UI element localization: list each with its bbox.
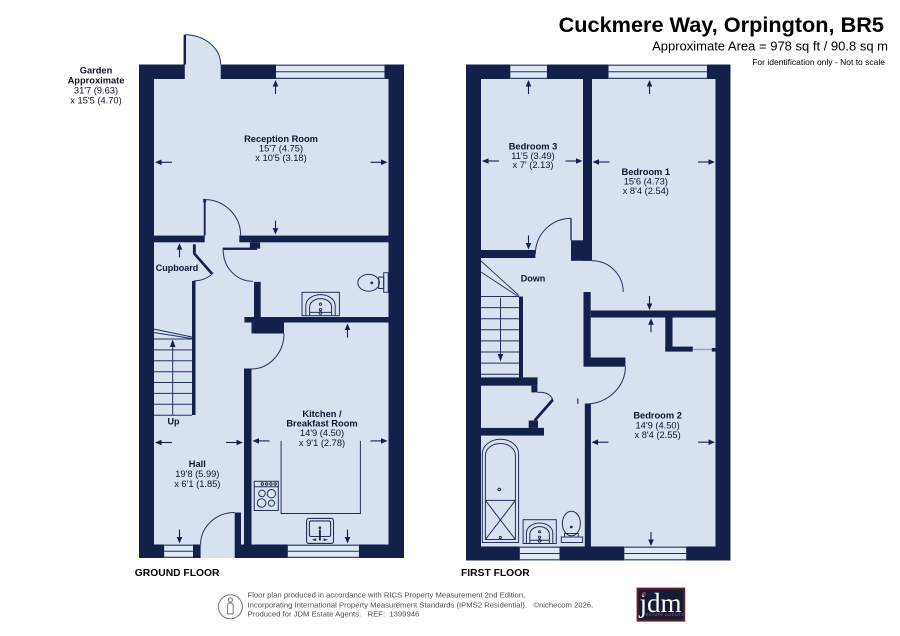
- svg-text:Bedroom 2: Bedroom 2: [633, 411, 682, 421]
- svg-text:Hall: Hall: [189, 459, 206, 469]
- svg-text:x 7' (2.13): x 7' (2.13): [512, 160, 553, 170]
- svg-text:Cuckmere Way, Orpington, BR5: Cuckmere Way, Orpington, BR5: [559, 12, 884, 37]
- svg-text:Cupboard: Cupboard: [156, 263, 199, 273]
- svg-text:x 6'1 (1.85): x 6'1 (1.85): [174, 479, 220, 489]
- svg-text:Reception Room: Reception Room: [244, 134, 318, 144]
- svg-text:x 9'1 (2.78): x 9'1 (2.78): [299, 438, 345, 448]
- svg-text:31'7 (9.63): 31'7 (9.63): [74, 85, 118, 95]
- svg-text:Approximate Area = 978 sq ft /: Approximate Area = 978 sq ft / 90.8 sq m: [652, 39, 888, 54]
- svg-text:x 8'4 (2.54): x 8'4 (2.54): [623, 186, 669, 196]
- svg-text:FIRST FLOOR: FIRST FLOOR: [461, 568, 530, 579]
- svg-text:x 10'5 (3.18): x 10'5 (3.18): [255, 153, 306, 163]
- svg-text:Kitchen /: Kitchen /: [302, 409, 342, 419]
- svg-text:Garden: Garden: [80, 65, 113, 75]
- svg-text:x 8'4 (2.55): x 8'4 (2.55): [634, 430, 680, 440]
- svg-text:Produced for JDM Estate Agents: Produced for JDM Estate Agents. REF: 139…: [248, 610, 420, 619]
- svg-text:Approximate: Approximate: [68, 76, 125, 86]
- svg-text:15'7 (4.75): 15'7 (4.75): [259, 144, 303, 154]
- svg-text:Breakfast Room: Breakfast Room: [286, 419, 357, 429]
- svg-text:ESTATE AGENTS: ESTATE AGENTS: [646, 612, 685, 617]
- svg-text:x 15'5 (4.70): x 15'5 (4.70): [70, 95, 121, 105]
- svg-text:For identification only - Not: For identification only - Not to scale: [752, 57, 885, 67]
- svg-text:GROUND FLOOR: GROUND FLOOR: [135, 568, 220, 579]
- svg-text:Incorporating International Pr: Incorporating International Property Mea…: [248, 600, 594, 609]
- svg-text:Up: Up: [168, 417, 180, 427]
- svg-text:Floor plan produced in accorda: Floor plan produced in accordance with R…: [248, 590, 526, 599]
- svg-text:Down: Down: [521, 274, 546, 284]
- svg-text:Bedroom 1: Bedroom 1: [622, 167, 671, 177]
- svg-text:19'8 (5.99): 19'8 (5.99): [175, 469, 219, 479]
- svg-text:14'9 (4.50): 14'9 (4.50): [636, 420, 680, 430]
- svg-text:14'9 (4.50): 14'9 (4.50): [300, 428, 344, 438]
